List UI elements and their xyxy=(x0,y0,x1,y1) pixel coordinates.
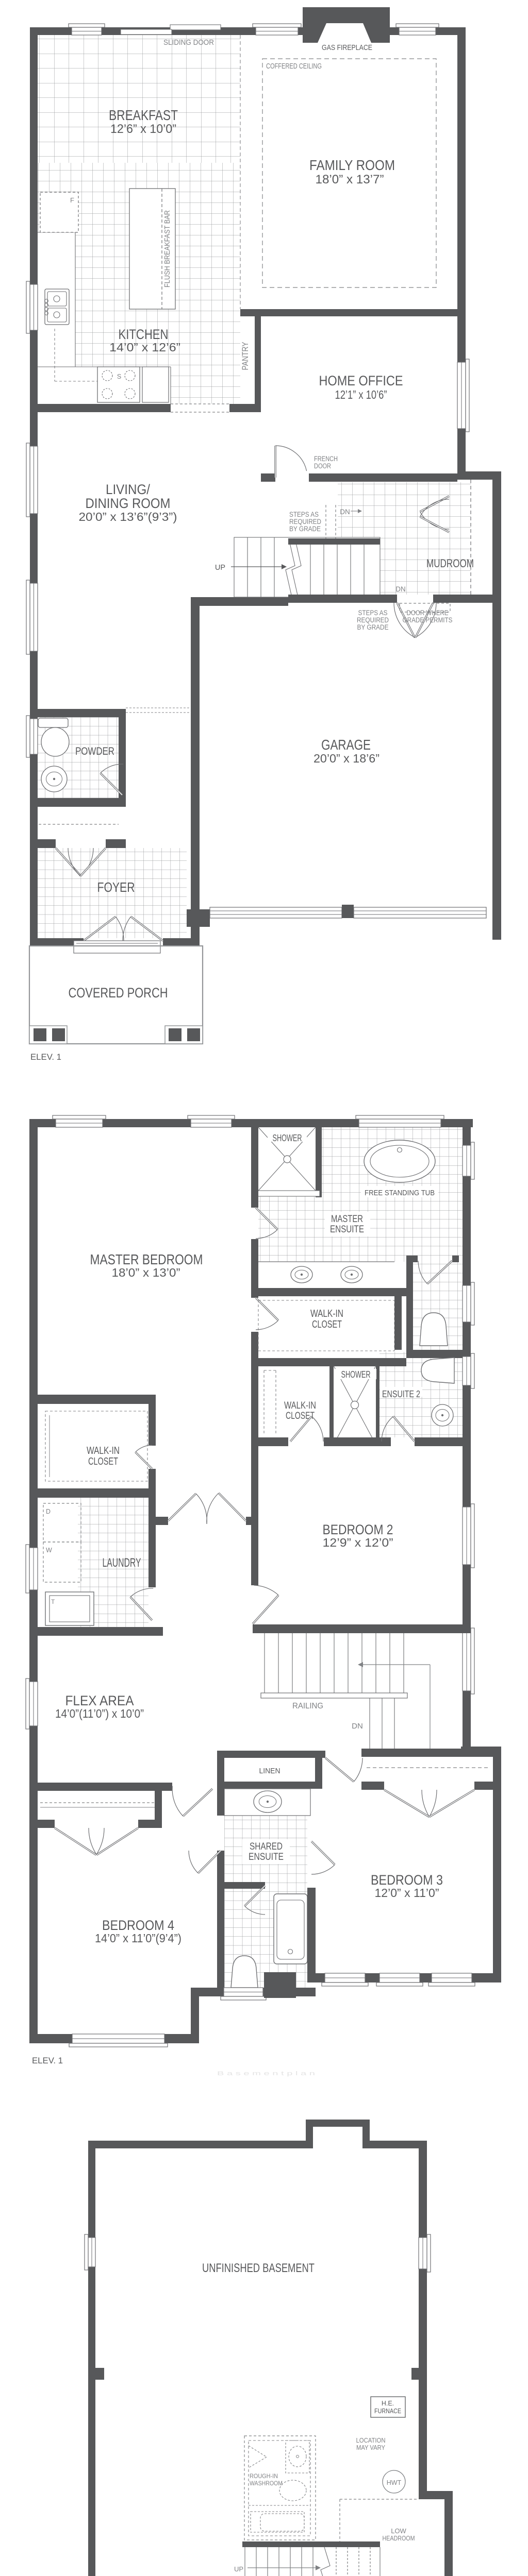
svg-text:ELEV. 1: ELEV. 1 xyxy=(32,2056,63,2065)
svg-text:HOME OFFICE: HOME OFFICE xyxy=(319,373,403,388)
svg-text:LINEN: LINEN xyxy=(259,1767,280,1775)
svg-text:PANTRY: PANTRY xyxy=(240,342,250,370)
svg-text:12’1” x 10’6”: 12’1” x 10’6” xyxy=(335,388,387,401)
svg-text:20’0” x 18’6”: 20’0” x 18’6” xyxy=(313,752,379,765)
svg-text:BEDROOM 2: BEDROOM 2 xyxy=(323,1522,393,1537)
svg-text:LAUNDRY: LAUNDRY xyxy=(103,1556,141,1570)
svg-text:GAS FIREPLACE: GAS FIREPLACE xyxy=(322,43,372,52)
svg-text:LOW: LOW xyxy=(391,2527,406,2535)
svg-text:MUDROOM: MUDROOM xyxy=(426,557,474,570)
svg-text:SLIDING DOOR: SLIDING DOOR xyxy=(163,38,214,47)
svg-text:18’0” x 13’0”: 18’0” x 13’0” xyxy=(112,1266,180,1279)
svg-text:SHARED: SHARED xyxy=(250,1841,283,1852)
svg-text:HWT: HWT xyxy=(387,2479,402,2486)
svg-text:FLUSH BREAKFAST BAR: FLUSH BREAKFAST BAR xyxy=(163,210,172,287)
svg-text:18’0” x 13’7”: 18’0” x 13’7” xyxy=(316,173,384,187)
svg-text:D: D xyxy=(46,1508,51,1515)
svg-text:12’9” x 12’0”: 12’9” x 12’0” xyxy=(323,1536,393,1549)
svg-text:DINING ROOM: DINING ROOM xyxy=(86,496,171,511)
svg-text:REQUIRED: REQUIRED xyxy=(289,518,321,526)
svg-text:B a s e m e n t p l a n: B a s e m e n t p l a n xyxy=(217,2071,315,2077)
svg-text:FOYER: FOYER xyxy=(97,879,135,895)
svg-text:FLEX AREA: FLEX AREA xyxy=(65,1693,134,1708)
svg-text:ENSUITE: ENSUITE xyxy=(330,1224,364,1235)
svg-text:BREAKFAST: BREAKFAST xyxy=(109,107,178,123)
svg-text:UP: UP xyxy=(234,2565,243,2573)
svg-text:WALK-IN: WALK-IN xyxy=(284,1400,316,1411)
svg-text:CLOSET: CLOSET xyxy=(312,1319,342,1330)
svg-text:LIVING/: LIVING/ xyxy=(106,482,150,497)
svg-text:POWDER: POWDER xyxy=(75,745,114,757)
svg-text:RAILING: RAILING xyxy=(292,1702,323,1710)
svg-text:SHOWER: SHOWER xyxy=(273,1133,302,1143)
svg-text:20’0” x 13’6”(9’3”): 20’0” x 13’6”(9’3”) xyxy=(79,510,177,523)
svg-text:T: T xyxy=(51,1598,55,1605)
svg-text:14’0” x 11’0”(9’4”): 14’0” x 11’0”(9’4”) xyxy=(95,1931,181,1945)
svg-text:DOOR WHERE: DOOR WHERE xyxy=(407,609,449,617)
svg-text:HEADROOM: HEADROOM xyxy=(383,2534,415,2542)
svg-text:S: S xyxy=(117,373,121,380)
svg-text:WALK-IN: WALK-IN xyxy=(87,1445,120,1456)
svg-text:ENSUITE: ENSUITE xyxy=(249,1852,284,1862)
svg-text:WASHROOM: WASHROOM xyxy=(250,2480,283,2487)
svg-text:ROUGH-IN: ROUGH-IN xyxy=(250,2472,278,2480)
svg-text:COVERED PORCH: COVERED PORCH xyxy=(69,985,168,1001)
svg-text:ELEV. 1: ELEV. 1 xyxy=(30,1052,61,1062)
svg-text:14’0”(11’0”) x 10’0”: 14’0”(11’0”) x 10’0” xyxy=(55,1707,144,1720)
svg-text:WALK-IN: WALK-IN xyxy=(310,1308,343,1319)
svg-text:BEDROOM 3: BEDROOM 3 xyxy=(371,1872,443,1888)
svg-text:SHOWER: SHOWER xyxy=(341,1369,371,1380)
svg-text:UNFINISHED BASEMENT: UNFINISHED BASEMENT xyxy=(202,2261,315,2275)
svg-text:W: W xyxy=(46,1547,52,1554)
svg-text:12’0” x 11’0”: 12’0” x 11’0” xyxy=(375,1886,439,1900)
svg-text:UP: UP xyxy=(215,564,225,572)
svg-text:CLOSET: CLOSET xyxy=(286,1411,315,1421)
svg-text:14’0” x 12’6”: 14’0” x 12’6” xyxy=(109,341,180,354)
svg-text:H.E.: H.E. xyxy=(382,2400,394,2407)
svg-text:F: F xyxy=(70,196,74,204)
svg-text:STEPS AS: STEPS AS xyxy=(289,511,319,518)
svg-text:COFFERED CEILING: COFFERED CEILING xyxy=(266,62,322,71)
svg-text:BY GRADE: BY GRADE xyxy=(357,623,389,631)
svg-text:FREE STANDING TUB: FREE STANDING TUB xyxy=(365,1189,435,1197)
svg-text:DN: DN xyxy=(340,508,350,516)
svg-text:CLOSET: CLOSET xyxy=(88,1456,118,1467)
svg-text:LOCATION: LOCATION xyxy=(356,2436,386,2444)
svg-text:KITCHEN: KITCHEN xyxy=(119,327,169,342)
svg-text:BY GRADE: BY GRADE xyxy=(289,525,321,533)
svg-text:DN: DN xyxy=(395,585,406,593)
svg-text:GRADE PERMITS: GRADE PERMITS xyxy=(403,616,453,624)
svg-text:STEPS AS: STEPS AS xyxy=(358,609,388,617)
svg-text:MAY VARY: MAY VARY xyxy=(356,2444,385,2451)
svg-text:BEDROOM 4: BEDROOM 4 xyxy=(102,1918,174,1933)
svg-text:GARAGE: GARAGE xyxy=(321,737,371,753)
svg-text:MASTER BEDROOM: MASTER BEDROOM xyxy=(90,1251,203,1267)
svg-text:FAMILY ROOM: FAMILY ROOM xyxy=(309,157,395,173)
svg-text:FRENCH: FRENCH xyxy=(314,455,338,463)
svg-text:ENSUITE 2: ENSUITE 2 xyxy=(382,1389,420,1399)
svg-text:DN: DN xyxy=(352,1722,363,1731)
svg-text:MASTER: MASTER xyxy=(331,1214,363,1225)
svg-text:FURNACE: FURNACE xyxy=(374,2408,401,2415)
svg-text:DOOR: DOOR xyxy=(314,462,331,470)
svg-text:REQUIRED: REQUIRED xyxy=(357,616,389,624)
svg-text:12’6” x 10’0”: 12’6” x 10’0” xyxy=(110,122,176,136)
